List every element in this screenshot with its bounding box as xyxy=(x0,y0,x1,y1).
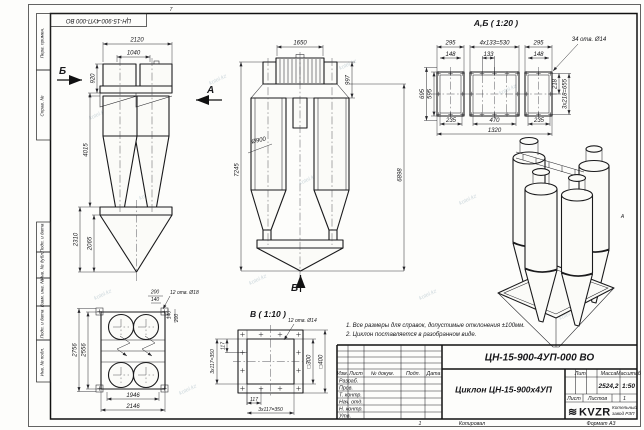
row-tkontr: Т. контр. xyxy=(339,393,362,399)
drawing-sheet: kotel.kz kotel.kz kotel.kz kotel.kz kote… xyxy=(0,0,644,430)
dim-148-left: 148 xyxy=(445,52,456,58)
margin-label-inv-dubl: Инв. № дубл. xyxy=(40,252,45,280)
v-view-title: В ( 1:10 ) xyxy=(250,309,286,319)
dim-140-right: 140 xyxy=(167,311,173,320)
ab-section-view: А,Б ( 1:20 ) 295 4х133=530 295 148 133 1… xyxy=(420,18,607,136)
dim-920: 920 xyxy=(91,73,97,84)
dim-148-right: 148 xyxy=(533,52,544,58)
dim-200-top: 200 xyxy=(150,290,160,296)
row-razrab: Разраб. xyxy=(339,379,358,385)
zone-mark-top: 7 xyxy=(170,7,173,13)
dim-400: □400 xyxy=(319,354,325,368)
watermark: kotel.kz xyxy=(93,288,113,301)
dim-140-top: 140 xyxy=(151,297,160,303)
row-nkontr: Н. контр. xyxy=(339,407,363,413)
watermark: kotel.kz xyxy=(498,83,518,96)
dim-133: 133 xyxy=(483,52,494,58)
product-name: Циклон ЦН-15-900х4УП xyxy=(455,385,553,395)
watermark: kotel.kz xyxy=(248,273,268,286)
dim-200-right: 200 xyxy=(174,314,180,324)
margin-label-podp-data-2: Подп. и дата xyxy=(40,309,45,338)
col-doc: № докум. xyxy=(371,371,394,377)
logo-caption-line1: Котельный xyxy=(612,404,637,410)
row-utv: Утв. xyxy=(339,413,351,419)
margin-label-podp-data-1: Подп. и дата xyxy=(40,223,45,252)
row-prov: Пров. xyxy=(339,386,353,392)
dim-2310: 2310 xyxy=(74,232,80,247)
dim-117-left: 117 xyxy=(221,342,227,350)
company-logo-text: KVZR xyxy=(579,407,611,419)
lit-label: Лит. xyxy=(574,371,587,377)
dim-295-left: 295 xyxy=(444,41,456,47)
sheets-value: 1 xyxy=(623,396,626,402)
dim-218: 218 xyxy=(553,78,559,90)
logo-caption-line2: завод РЗП xyxy=(611,411,635,416)
holes-note-12-14: 12 отв. Ø14 xyxy=(288,318,317,324)
sheets-label: Листов xyxy=(587,396,608,402)
dim-235-right: 235 xyxy=(533,118,545,124)
dim-117-bottom: 117 xyxy=(250,397,258,403)
dim-1650: 1650 xyxy=(293,41,307,47)
mass-value: 2524,2 xyxy=(598,383,619,390)
dim-6898: 6898 xyxy=(398,168,404,182)
dim-1320: 1320 xyxy=(488,128,502,134)
dim-4015: 4015 xyxy=(84,143,90,157)
company-logo-glyph-icon: ≋ xyxy=(568,407,578,419)
dim-235-left: 235 xyxy=(445,118,457,124)
scale-label: Масштаб xyxy=(616,371,642,377)
dim-2065: 2065 xyxy=(88,236,94,251)
title-block: Изм. Лист № докум. Подп. Дата Разраб. Пр… xyxy=(337,345,642,419)
dim-350-bottom: 3х117=350 xyxy=(258,407,283,413)
dim-300: □300 xyxy=(307,354,313,368)
row-nachotd: Нач. отд. xyxy=(339,400,363,406)
dim-595: 595 xyxy=(428,88,434,99)
dim-350-left: 3х117=350 xyxy=(210,349,216,374)
holes-note-12-18: 12 отв. Ø18 xyxy=(170,290,199,296)
sheet-label: Лист xyxy=(566,396,581,402)
margin-label-perv-primen: Перв. примен. xyxy=(40,28,45,59)
dim-2556: 2556 xyxy=(82,343,88,358)
holes-note-34: 34 отв. Ø14 xyxy=(572,37,607,43)
col-podp: Подп. xyxy=(406,371,420,377)
dim-2756: 2756 xyxy=(73,343,79,358)
dim-530: 4х133=530 xyxy=(480,41,511,47)
footer-copied-label: Копировал xyxy=(459,421,485,427)
isometric-view xyxy=(498,138,614,348)
col-data: Дата xyxy=(426,371,441,377)
margin-label-vzam-inv: Взам. инв. № xyxy=(40,279,45,307)
doc-number-rotated-stamp: ЦН-15-900-4УП-000 ВО xyxy=(66,17,131,23)
technical-notes: 1. Все размеры для справок, допустимые о… xyxy=(345,323,525,338)
col-list: Лист xyxy=(348,371,363,377)
scale-value: 1:50 xyxy=(622,383,635,390)
footer-sheet-num: 1 xyxy=(419,421,422,427)
dim-470: 470 xyxy=(489,118,500,124)
side-view: Б А 2120 1040 920 4015 2310 2065 xyxy=(57,38,222,283)
note-2: 2. Циклон поставляется в разобранном вид… xyxy=(345,332,476,338)
dim-2120: 2120 xyxy=(129,38,144,44)
note-1: 1. Все размеры для справок, допустимые о… xyxy=(346,323,525,329)
mass-label: Масса xyxy=(601,371,617,377)
watermark: kotel.kz xyxy=(178,383,198,396)
footer-format-label: Формат А3 xyxy=(587,421,616,427)
view-arrow-v-label: В xyxy=(291,283,298,294)
front-view: Ø900 1650 997 7245 6898 В xyxy=(235,41,407,295)
ab-view-title: А,Б ( 1:20 ) xyxy=(473,18,518,28)
title-doc-number: ЦН-15-900-4УП-000 ВО xyxy=(485,353,595,364)
watermark: kotel.kz xyxy=(338,58,358,71)
dim-1040: 1040 xyxy=(127,51,141,57)
dim-695: 695 xyxy=(420,88,426,99)
view-arrow-b-label: Б xyxy=(59,66,66,77)
watermark: kotel.kz xyxy=(458,193,478,206)
v-flange-view: В ( 1:10 ) 12 отв. Ø14 □300 □400 117 3х1… xyxy=(210,309,328,415)
margin-label-inv-podl: Инв. № подл. xyxy=(40,348,45,377)
dim-7245: 7245 xyxy=(235,163,241,177)
technical-drawing: kotel.kz kotel.kz kotel.kz kotel.kz kote… xyxy=(0,0,644,430)
dim-2146: 2146 xyxy=(125,404,140,410)
watermark: kotel.kz xyxy=(418,288,438,301)
dim-295-right: 295 xyxy=(532,41,544,47)
zone-mark-right: А xyxy=(620,214,625,220)
dim-1946: 1946 xyxy=(126,393,140,399)
dim-655: 3х218=655 xyxy=(563,78,569,109)
margin-label-sprav-no: Справ. № xyxy=(40,96,45,117)
col-izm: Изм. xyxy=(337,371,348,377)
dim-997: 997 xyxy=(346,74,352,85)
view-arrow-a-label: А xyxy=(206,85,214,96)
